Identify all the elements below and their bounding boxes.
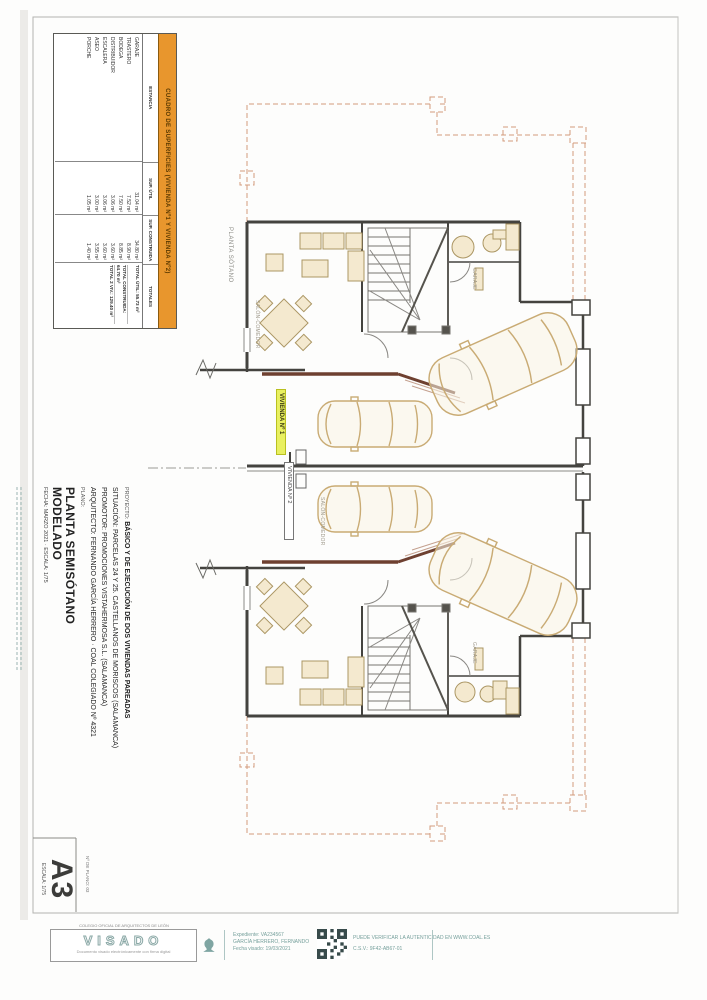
stairs-upper [368,228,450,334]
door-swings [364,262,472,676]
break-marks [196,360,216,578]
floor-name-label: PLANTA SÓTANO [227,227,233,293]
stamp-box-topline: COLEGIO OFICIAL DE ARQUITECTOS DE LEÓN [62,923,186,928]
expediente-line: Expediente: VA234567 [233,932,309,939]
built-value: 1.40 m² [84,217,92,260]
project-promoter: PROMOTOR: PROMOCIONES VISTAHERMOSA S.L. … [98,487,109,912]
scanned-plan-sheet: { "page": { "format_label": "A3", "scale… [0,0,707,1000]
built-value: 3.55 m² [92,217,100,260]
room-name: ESCALERA [100,37,108,158]
built-value: 3.60 m² [108,217,116,260]
college-crest-icon [201,931,217,959]
col-header-built: SUP. CONSTRUIDA [143,216,158,265]
util-value: 3.06 m² [100,164,108,212]
util-value: 7.52 m² [124,164,132,212]
totals-column: TOTAL ÚTIL: 55.73 m² TOTAL CONSTRUIDA: 6… [55,263,142,326]
visado-subline: Documento visado electrónicamente con fi… [51,949,196,954]
fecha-visado-line: Fecha visado: 19/03/2021 [233,946,309,953]
stairs-lower [368,604,450,710]
col-header-totals: TOTALES [143,265,158,328]
unit2-label: VIVIENDA Nº 2 [284,462,294,540]
stamp-divider-1 [224,930,225,960]
room-util-values: 31.04 m² 7.52 m² 7.50 m² 3.06 m² 3.06 m²… [55,162,142,215]
stamp-divider-2 [432,930,433,960]
areas-table: CUADRO DE SUPERFICIES (VIVIENDA Nº1 Y VI… [53,33,177,329]
col-header-util: SUP. ÚTIL [143,163,158,217]
living-label-lower: SALÓN-COMEDOR [319,497,325,549]
garage-label-lower: GARAJE [471,642,477,682]
util-value: 3.06 m² [108,164,116,212]
plan-label: PLANO: [76,487,87,912]
col-header-room: ESTANCIA [143,34,158,163]
total-both: TOTAL 2 VIV.: 129.40 m² [102,265,114,324]
total-util: TOTAL ÚTIL: 55.73 m² [127,265,140,324]
verify-line-2: C.S.V.: 9F42-AB67-01 [353,946,490,953]
room-name: PORCHE [84,37,92,158]
room-name: BODEGA [116,37,124,158]
util-value: 31.04 m² [132,164,140,212]
util-value: 1.05 m² [84,164,92,212]
util-value: 7.50 m² [116,164,124,212]
built-value: 34.80 m² [132,217,140,260]
built-value: 8.85 m² [116,217,124,260]
format-label: A3 [46,845,76,913]
project-label: PROYECTO: [123,487,129,519]
room-name: ASEO [92,37,100,158]
project-situation: SITUACIÓN: PARCELAS 24 Y 25. CASTELLANOS… [109,487,120,912]
built-value: 3.60 m² [100,217,108,260]
room-name: TRASTERO [124,37,132,158]
scale-label: ESCALA: 1/75 [40,845,46,913]
verify-line-1: PUEDE VERIFICAR LA AUTENTICIDAD EN WWW.C… [353,935,490,942]
walls [200,222,590,716]
cars [318,301,586,647]
total-built: TOTAL CONSTRUIDA: 64.70 m² [114,265,127,324]
room-name: GARAJE [132,37,140,158]
verification-block: PUEDE VERIFICAR LA AUTENTICIDAD EN WWW.C… [353,935,490,953]
plan-number: Nº DE PLANO: 03 [85,856,90,908]
project-architect: ARQUITECTO: FERNANDO GARCÍA HERRERO · CO… [87,487,98,912]
colegiado-line: GARCÍA HERRERO, FERNANDO [233,939,309,946]
visado-stamp-box: VISADO Documento visado electrónicamente… [50,929,197,962]
qr-code [317,929,347,959]
util-value: 3.00 m² [92,164,100,212]
room-names: GARAJE TRASTERO BODEGA DISTRIBUIDOR ESCA… [55,34,142,162]
living-label-upper: SALÓN-COMEDOR [254,300,260,352]
garage-label-upper: GARAJE [471,268,477,308]
room-name: DISTRIBUIDOR [108,37,116,158]
unit1-label: VIVIENDA Nº 1 [276,389,286,455]
visado-brand: VISADO [51,933,196,948]
areas-table-headers: ESTANCIA SUP. ÚTIL SUP. CONSTRUIDA TOTAL… [142,34,158,328]
areas-table-title: CUADRO DE SUPERFICIES (VIVIENDA Nº1 Y VI… [158,34,176,328]
room-built-values: 34.80 m² 8.90 m² 8.85 m² 3.60 m² 3.60 m²… [55,215,142,263]
project-title: BÁSICO Y DE EJECUCIÓN DE DOS VIVIENDAS P… [123,521,130,718]
format-label-block: A3 ESCALA: 1/75 [22,845,76,913]
built-value: 8.90 m² [124,217,132,260]
expediente-block: Expediente: VA234567 GARCÍA HERRERO, FER… [233,932,309,953]
